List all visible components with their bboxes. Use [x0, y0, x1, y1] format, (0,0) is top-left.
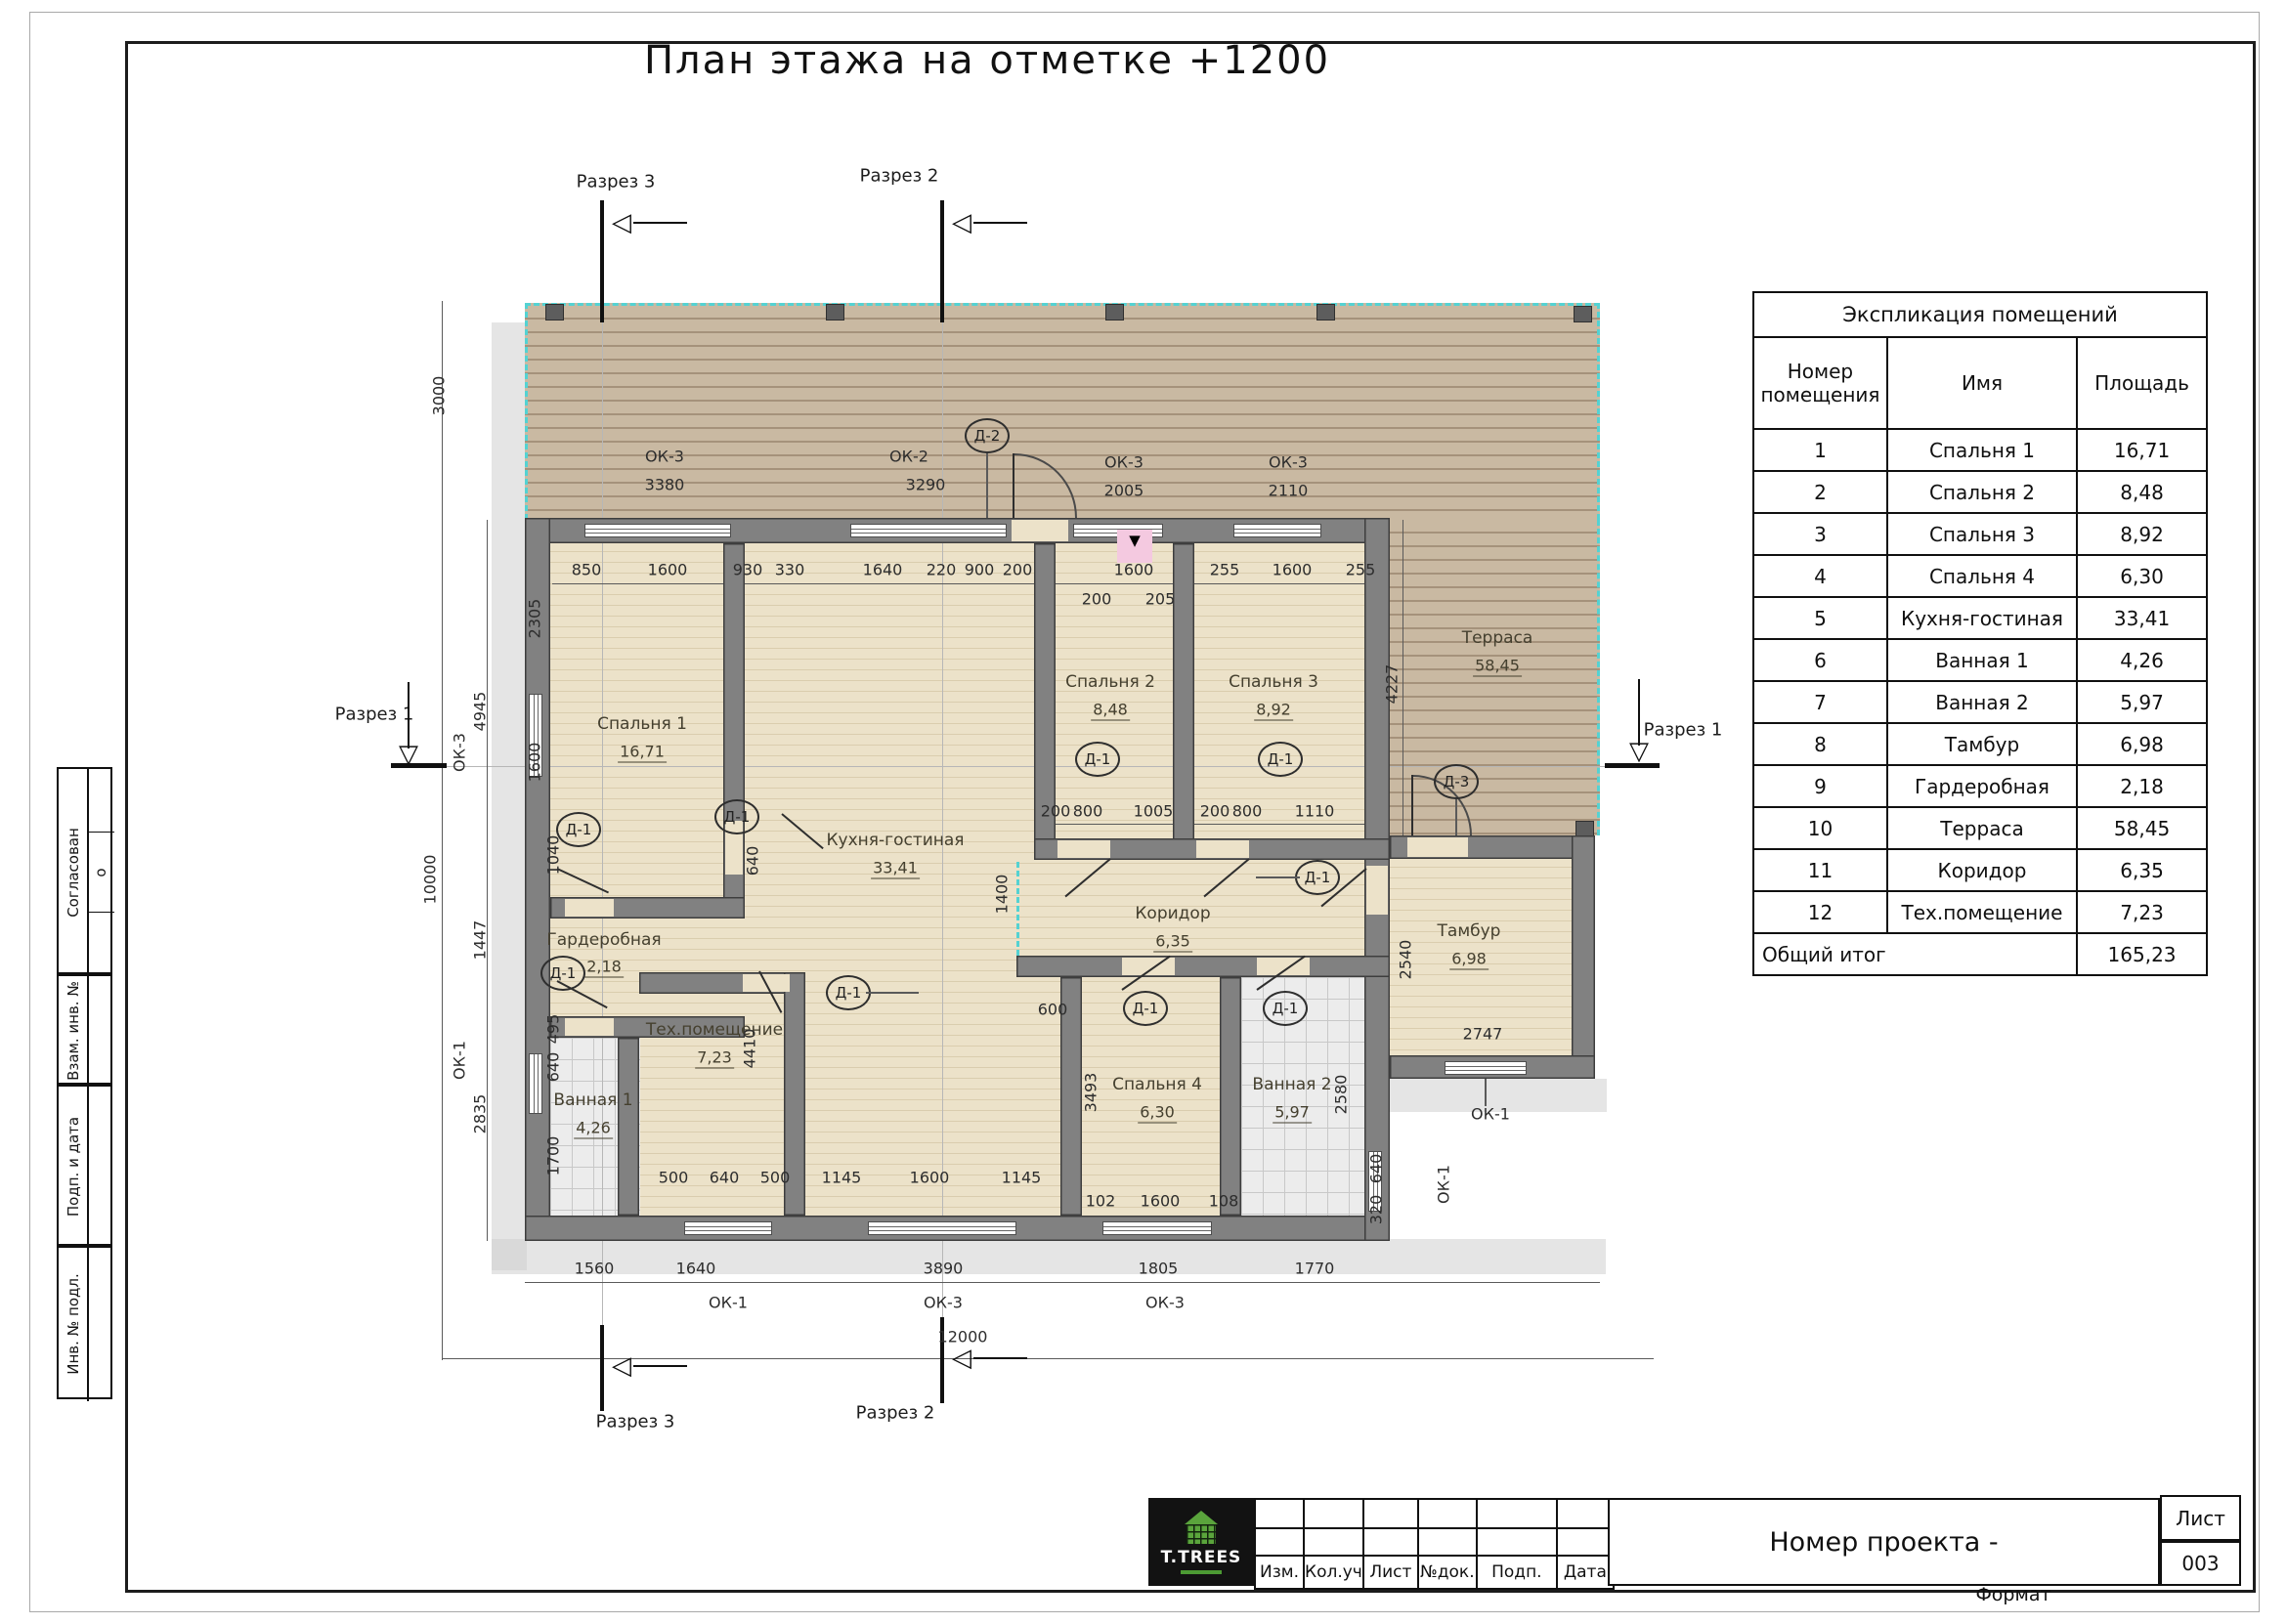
door-opening — [1012, 520, 1068, 541]
window-tag: ОК-2 — [889, 448, 928, 466]
cell-area: 6,35 — [2077, 849, 2207, 891]
tb-col-data: Дата — [1557, 1556, 1614, 1589]
dim-label: 200 — [1200, 802, 1230, 821]
dim-label: 4227 — [1383, 664, 1402, 705]
window-ok3 — [584, 524, 731, 537]
window-tag: ОК-1 — [709, 1294, 748, 1312]
cell-num: 12 — [1753, 891, 1887, 933]
cell-num: 4 — [1753, 555, 1887, 597]
dim-label: 3000 — [430, 376, 449, 416]
col-number-line2: помещения — [1758, 383, 1882, 406]
dim-label: 1600 — [526, 743, 544, 783]
dim-label: 12000 — [938, 1328, 988, 1346]
cell-area: 6,30 — [2077, 555, 2207, 597]
door-tag: Д-1 — [1295, 860, 1340, 895]
room-area: 6,30 — [1138, 1103, 1177, 1124]
col-number-line1: Номер — [1758, 360, 1882, 383]
window-tag: ОК-1 — [1435, 1165, 1453, 1204]
sheet-label-cell: Лист — [2160, 1495, 2241, 1541]
door-tag: Д-1 — [714, 799, 759, 834]
dim-label: 3493 — [1082, 1073, 1100, 1113]
dim-label: 800 — [1073, 802, 1103, 821]
window-dim: 2005 — [1104, 482, 1144, 500]
dim-label: 1700 — [544, 1136, 563, 1176]
cell-area: 58,45 — [2077, 807, 2207, 849]
section-marker — [1638, 679, 1640, 746]
dim-label: 1145 — [1002, 1169, 1042, 1187]
room-label: Спальня 4 — [1112, 1075, 1202, 1094]
room-label: Ванная 2 — [1252, 1075, 1331, 1094]
project-number-cell: Номер проекта - — [1608, 1498, 2160, 1586]
window-ok3 — [1102, 1221, 1212, 1235]
room-label: Ванная 1 — [553, 1090, 632, 1110]
stamp-approved-value: о — [92, 868, 109, 876]
wall — [1173, 543, 1194, 860]
section-marker — [973, 1357, 1027, 1359]
door-tag: Д-1 — [1075, 742, 1120, 777]
section-marker — [633, 1365, 687, 1367]
cell-num: 7 — [1753, 681, 1887, 723]
terrace-post — [826, 304, 844, 321]
dim-label: 1040 — [544, 835, 563, 876]
wall — [618, 1038, 639, 1216]
stamp-row2-box: Подп. и дата — [57, 1085, 112, 1246]
dim-label: 2305 — [526, 599, 544, 639]
window-tag: ОК-1 — [1471, 1105, 1510, 1124]
room-area: 8,92 — [1254, 701, 1293, 721]
cell-num: 8 — [1753, 723, 1887, 765]
dim-label: 1770 — [1295, 1260, 1335, 1278]
door-tag: Д-1 — [1123, 991, 1168, 1026]
cell-area: 16,71 — [2077, 429, 2207, 471]
tag-leader — [1455, 799, 1457, 835]
dim-label: 200 — [1082, 590, 1112, 609]
room-area: 6,35 — [1153, 932, 1192, 953]
room-label: Коридор — [1135, 904, 1210, 923]
cell-area: 8,92 — [2077, 513, 2207, 555]
section-marker — [940, 200, 944, 322]
dim-label: 1640 — [863, 561, 903, 579]
window-ok1 — [1445, 1061, 1527, 1075]
dim-label: 4410 — [741, 1029, 759, 1069]
cell-name: Спальня 3 — [1887, 513, 2077, 555]
dim-label: 330 — [775, 561, 805, 579]
cell-area: 4,26 — [2077, 639, 2207, 681]
cell-area: 6,98 — [2077, 723, 2207, 765]
stamp-row1-box: Взам. инв. № — [57, 974, 112, 1085]
cursor-marker: ▼ — [1117, 530, 1152, 563]
stamp-row1-label: Взам. инв. № — [65, 981, 82, 1081]
terrace-post — [1316, 304, 1335, 321]
dim-label: 1600 — [1114, 561, 1154, 579]
dim-label: 1005 — [1134, 802, 1174, 821]
dim-line — [1402, 520, 1403, 835]
dim-label: 3890 — [924, 1260, 964, 1278]
dim-label: 200 — [1003, 561, 1033, 579]
room-area: 33,41 — [871, 859, 920, 879]
room-label: Спальня 1 — [597, 714, 687, 734]
opening-dashed-line — [1016, 862, 1019, 956]
room-area: 5,97 — [1273, 1103, 1312, 1124]
cell-name: Ванная 1 — [1887, 639, 2077, 681]
dim-label: 1600 — [910, 1169, 950, 1187]
room-label: Терраса — [1462, 628, 1533, 648]
titleblock-grid: Изм. Кол.уч Лист №док. Подп. Дата — [1254, 1498, 1615, 1590]
section-marker — [973, 222, 1027, 224]
door-opening — [1407, 837, 1468, 857]
company-logo: T.TREES — [1148, 1498, 1254, 1586]
room-label: Гардеробная — [546, 930, 661, 950]
window-ok1 — [684, 1221, 772, 1235]
cell-area: 5,97 — [2077, 681, 2207, 723]
room-label: Спальня 2 — [1065, 672, 1155, 692]
tag-leader — [866, 992, 919, 994]
dim-label: 2835 — [471, 1094, 490, 1134]
dim-line — [442, 301, 443, 1360]
cell-num: 9 — [1753, 765, 1887, 807]
stamp-approved-box: Согласован о — [57, 767, 112, 974]
cell-num: 1 — [1753, 429, 1887, 471]
tb-col-list: Лист — [1363, 1556, 1418, 1589]
door-tag: Д-2 — [965, 418, 1010, 453]
sheet-number-cell: 003 — [2160, 1541, 2241, 1586]
dim-line — [552, 583, 1388, 584]
dim-label: 600 — [1038, 1001, 1068, 1019]
dim-label: 1110 — [1295, 802, 1335, 821]
cell-name: Тамбур — [1887, 723, 2077, 765]
window-tag: ОК-3 — [645, 448, 684, 466]
dim-label: 320 — [1367, 1195, 1386, 1225]
dim-label: 640 — [544, 1052, 563, 1083]
room-label: Кухня-гостиная — [826, 831, 964, 850]
dim-label: 200 — [1041, 802, 1071, 821]
dim-label: 2747 — [1463, 1025, 1503, 1044]
cell-name: Спальня 1 — [1887, 429, 2077, 471]
dim-label: 1640 — [676, 1260, 716, 1278]
window-ok3 — [1233, 524, 1321, 537]
cell-num: 11 — [1753, 849, 1887, 891]
dim-label: 1600 — [648, 561, 688, 579]
window-tag: ОК-3 — [451, 733, 469, 772]
dim-label: 495 — [544, 1014, 563, 1045]
dim-label: 640 — [744, 846, 762, 876]
dim-label: 1600 — [1273, 561, 1313, 579]
dim-label: 2580 — [1332, 1075, 1351, 1115]
dim-label: 1600 — [1141, 1192, 1181, 1211]
door-tag: Д-1 — [556, 812, 601, 847]
dim-label: 1145 — [822, 1169, 862, 1187]
door-tag: Д-3 — [1434, 764, 1479, 799]
dim-line — [1034, 824, 1390, 825]
room-area: 7,23 — [695, 1048, 734, 1069]
stamp-row2-label: Подп. и дата — [65, 1117, 82, 1217]
window-ok3 — [868, 1221, 1016, 1235]
section-arrow-icon: ◁ — [952, 1346, 971, 1371]
cursor-triangle-icon: ▼ — [1129, 532, 1141, 563]
door-tag: Д-1 — [540, 956, 585, 991]
cell-name: Кухня-гостиная — [1887, 597, 2077, 639]
dim-label: 220 — [927, 561, 957, 579]
schedule-col-number: Номер помещения — [1753, 337, 1887, 429]
stamp-row3-label: Инв. № подл. — [65, 1273, 82, 1374]
cell-name: Спальня 4 — [1887, 555, 2077, 597]
schedule-total-label: Общий итог — [1753, 933, 2077, 975]
dim-label: 108 — [1209, 1192, 1239, 1211]
dim-label: 1805 — [1139, 1260, 1179, 1278]
cell-num: 10 — [1753, 807, 1887, 849]
door-tag: Д-1 — [826, 975, 871, 1010]
room-schedule-table: Экспликация помещений Номер помещения Им… — [1752, 291, 2208, 976]
dim-label: 102 — [1086, 1192, 1116, 1211]
cell-name: Спальня 2 — [1887, 471, 2077, 513]
tag-leader — [986, 453, 988, 518]
section-arrow-icon: ◁ — [612, 210, 631, 235]
dim-label: 500 — [659, 1169, 689, 1187]
window-dim: 3290 — [906, 476, 946, 494]
section-arrow-icon: ◁ — [952, 210, 971, 235]
cell-area: 33,41 — [2077, 597, 2207, 639]
door-tag: Д-1 — [1263, 991, 1308, 1026]
section-arrow-icon: ◁ — [612, 1353, 631, 1379]
section-marker — [1605, 763, 1660, 768]
dim-label: 255 — [1346, 561, 1376, 579]
room-area: 2,18 — [584, 958, 624, 978]
dim-label: 1560 — [575, 1260, 615, 1278]
room-area: 16,71 — [618, 743, 667, 763]
room-area: 58,45 — [1473, 657, 1522, 677]
cell-name: Тех.помещение — [1887, 891, 2077, 933]
cell-num: 2 — [1753, 471, 1887, 513]
section3-line — [602, 322, 603, 1325]
door-opening — [1057, 840, 1110, 858]
cell-num: 3 — [1753, 513, 1887, 555]
dim-label: 800 — [1232, 802, 1263, 821]
cell-area: 7,23 — [2077, 891, 2207, 933]
window-tag: ОК-3 — [924, 1294, 963, 1312]
wall — [1220, 977, 1241, 1216]
cell-name: Гардеробная — [1887, 765, 2077, 807]
terrace-post — [1105, 304, 1124, 321]
window-ok2 — [850, 524, 1007, 537]
cell-area: 8,48 — [2077, 471, 2207, 513]
window-ok1 — [529, 1053, 542, 1114]
schedule-col-name: Имя — [1887, 337, 2077, 429]
section-marker — [408, 682, 410, 748]
terrace-post — [1574, 306, 1592, 322]
dim-label: 640 — [1367, 1154, 1386, 1184]
room-area: 8,48 — [1091, 701, 1130, 721]
room-area: 4,26 — [574, 1119, 613, 1139]
room-label: Тамбур — [1438, 921, 1501, 941]
cell-name: Ванная 2 — [1887, 681, 2077, 723]
tb-col-dok: №док. — [1418, 1556, 1477, 1589]
wall — [1016, 956, 1390, 977]
section-label: Разрез 1 — [335, 705, 414, 725]
wall — [1572, 835, 1595, 1079]
window-tag: ОК-3 — [1269, 453, 1308, 472]
dim-label: 4945 — [471, 692, 490, 732]
dim-line — [525, 1282, 1600, 1283]
schedule-title: Экспликация помещений — [1753, 292, 2207, 337]
logo-house-icon — [1187, 1524, 1216, 1544]
drawing-sheet: План этажа на отметке +1200 — [0, 0, 2287, 1624]
logo-text: T.TREES — [1161, 1548, 1242, 1567]
cell-name: Коридор — [1887, 849, 2077, 891]
section-label: Разрез 2 — [860, 166, 939, 187]
dim-label: 850 — [572, 561, 602, 579]
tb-col-koluch: Кол.уч — [1304, 1556, 1363, 1589]
window-tag: ОК-3 — [1145, 1294, 1185, 1312]
tb-col-podp: Подп. — [1477, 1556, 1557, 1589]
door-opening — [565, 899, 614, 917]
section-label: Разрез 3 — [596, 1412, 675, 1432]
window-dim: 3380 — [645, 476, 685, 494]
dim-label: 205 — [1145, 590, 1176, 609]
stamp-row3-box: Инв. № подл. — [57, 1246, 112, 1399]
dim-label: 500 — [760, 1169, 791, 1187]
section-label: Разрез 3 — [577, 172, 656, 192]
tag-leader — [1256, 876, 1300, 878]
format-label: Формат — [1975, 1584, 2050, 1605]
dim-label: 1400 — [993, 875, 1012, 915]
terrace-post — [545, 304, 564, 321]
dim-label: 930 — [733, 561, 763, 579]
shadow — [492, 322, 527, 535]
door-opening — [1366, 866, 1388, 915]
cell-num: 6 — [1753, 639, 1887, 681]
dim-label: 640 — [710, 1169, 740, 1187]
section-marker — [600, 200, 604, 322]
section-marker — [391, 763, 447, 768]
dim-label: 255 — [1210, 561, 1240, 579]
room-label: Спальня 3 — [1229, 672, 1318, 692]
schedule-col-area: Площадь — [2077, 337, 2207, 429]
tag-leader — [1485, 1079, 1487, 1106]
door-opening — [1196, 840, 1249, 858]
section-marker — [633, 222, 687, 224]
window-tag: ОК-1 — [451, 1041, 469, 1080]
section-label: Разрез 2 — [856, 1403, 935, 1424]
room-label: Тех.помещение — [646, 1020, 783, 1040]
schedule-total-area: 165,23 — [2077, 933, 2207, 975]
section-arrow-icon: ▽ — [1629, 739, 1649, 764]
page-title: План этажа на отметке +1200 — [644, 38, 1330, 83]
section-marker — [600, 1325, 604, 1411]
tb-col-izm: Изм. — [1255, 1556, 1304, 1589]
dim-label: 10000 — [421, 855, 440, 905]
stamp-approved-label: Согласован — [65, 828, 82, 918]
window-tag: ОК-3 — [1104, 453, 1143, 472]
room-area: 6,98 — [1449, 950, 1489, 970]
cell-name: Терраса — [1887, 807, 2077, 849]
logo-tagline — [1181, 1570, 1222, 1574]
door-tag: Д-1 — [1258, 742, 1303, 777]
cell-num: 5 — [1753, 597, 1887, 639]
window-dim: 2110 — [1269, 482, 1309, 500]
dim-label: 900 — [965, 561, 995, 579]
dim-label: 2540 — [1397, 940, 1415, 980]
dim-label: 1447 — [471, 920, 490, 961]
cell-area: 2,18 — [2077, 765, 2207, 807]
shadow — [492, 535, 527, 1270]
shadow — [492, 1239, 1606, 1274]
section-label: Разрез 1 — [1644, 720, 1723, 741]
door-opening — [565, 1018, 614, 1036]
logo-house-icon — [1185, 1511, 1218, 1524]
